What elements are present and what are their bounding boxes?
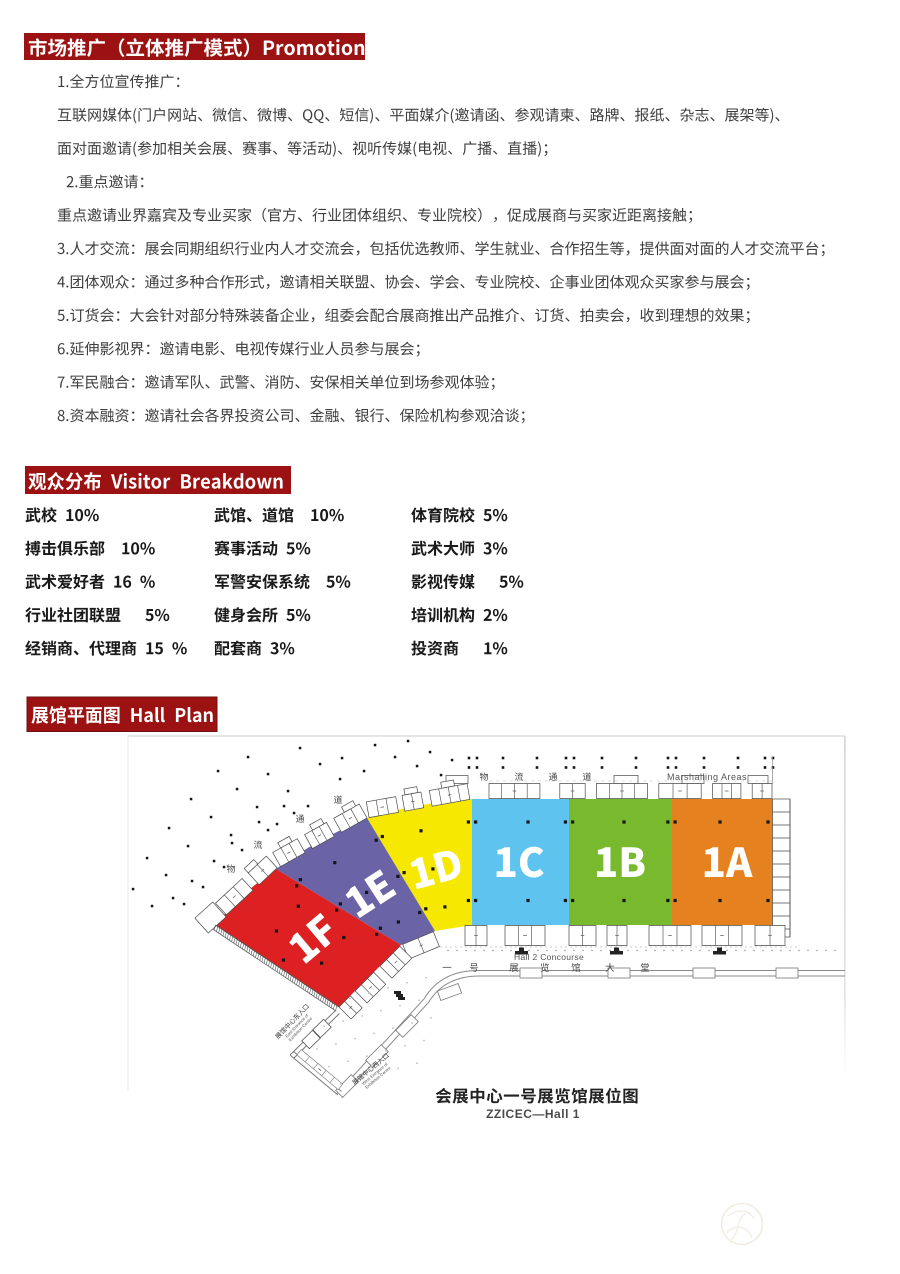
svg-text:Hall 2 Concourse: Hall 2 Concourse [514,952,584,962]
svg-text:ZZICEC—Hall 1: ZZICEC—Hall 1 [486,1107,580,1121]
svg-text:Marshalling Areas: Marshalling Areas [667,772,747,782]
